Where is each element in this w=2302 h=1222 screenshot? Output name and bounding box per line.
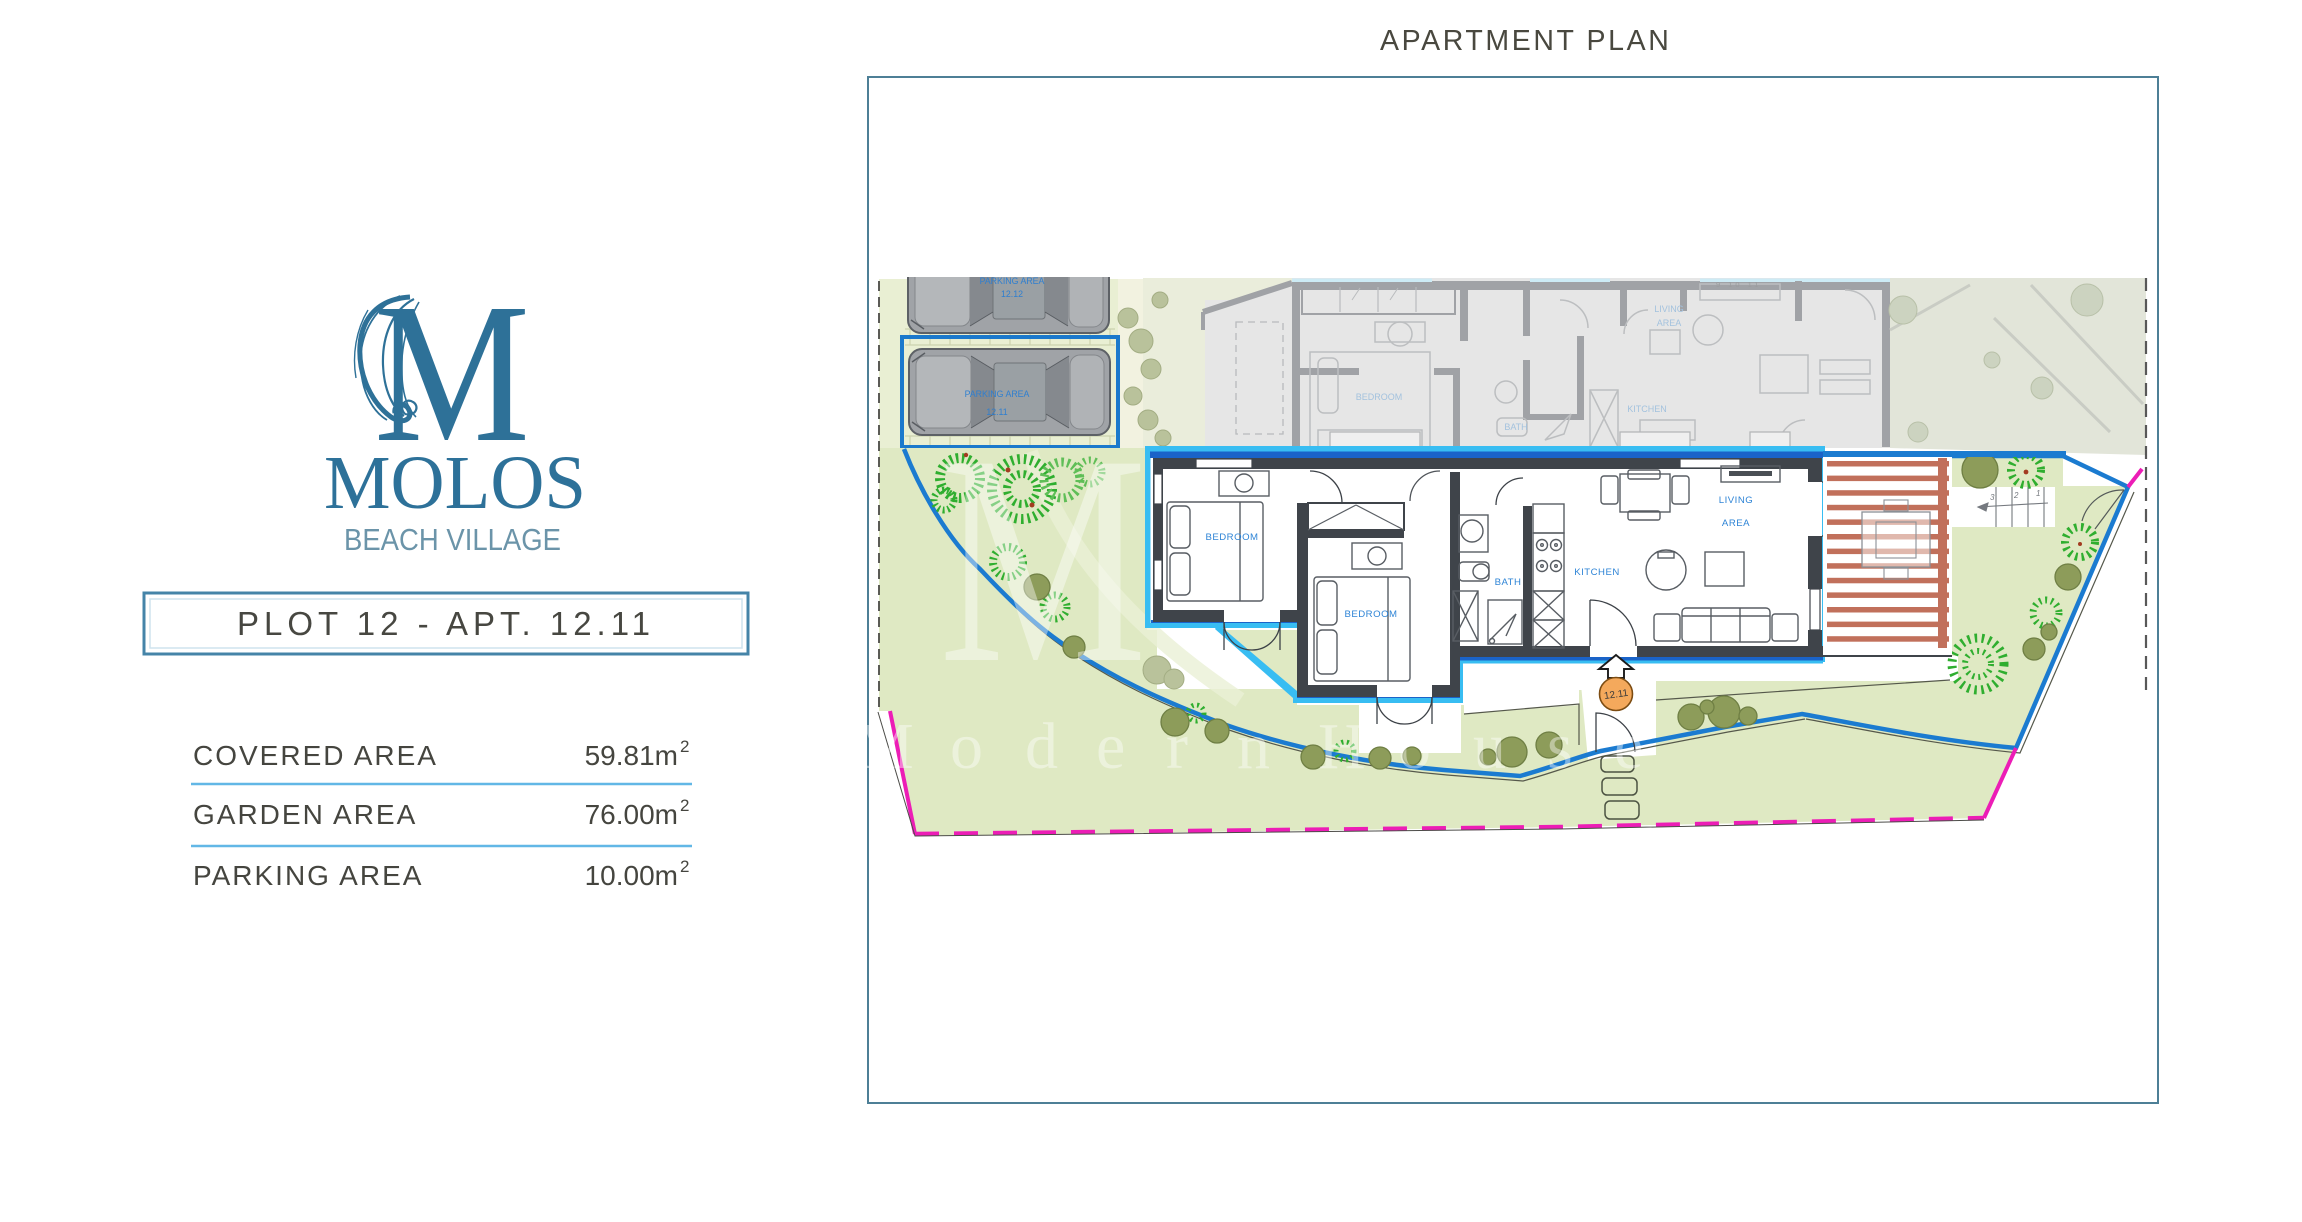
svg-text:APARTMENT PLAN: APARTMENT PLAN (1380, 25, 1671, 57)
svg-text:MOLOS: MOLOS (324, 441, 586, 525)
svg-text:LIVING: LIVING (1719, 495, 1753, 506)
svg-text:PARKING AREA: PARKING AREA (193, 860, 423, 891)
svg-text:KITCHEN: KITCHEN (1627, 404, 1667, 414)
svg-text:BEDROOM: BEDROOM (1205, 532, 1258, 543)
svg-text:o: o (1398, 710, 1431, 783)
svg-text:o: o (950, 710, 983, 783)
svg-text:BEDROOM: BEDROOM (1356, 392, 1403, 402)
svg-text:BATH: BATH (1495, 577, 1522, 588)
svg-text:n: n (1237, 710, 1270, 783)
svg-text:KITCHEN: KITCHEN (1574, 567, 1620, 578)
svg-text:e: e (1096, 710, 1125, 783)
svg-text:LIVING: LIVING (1654, 304, 1684, 314)
svg-text:COVERED AREA: COVERED AREA (193, 740, 438, 771)
svg-text:H: H (1318, 710, 1366, 783)
svg-text:9 10 11: 9 10 11 (1716, 280, 1761, 289)
svg-text:12.12: 12.12 (1001, 289, 1023, 299)
svg-text:AREA: AREA (1722, 518, 1750, 529)
svg-text:76.00m: 76.00m (585, 799, 678, 830)
svg-text:1: 1 (2036, 489, 2040, 498)
svg-text:GARDEN AREA: GARDEN AREA (193, 799, 417, 830)
svg-text:2: 2 (680, 796, 689, 815)
svg-text:BEDROOM: BEDROOM (1344, 609, 1397, 620)
svg-text:2: 2 (2013, 491, 2019, 500)
svg-text:PARKING AREA: PARKING AREA (980, 276, 1045, 286)
svg-text:3: 3 (1990, 493, 1995, 502)
svg-text:2: 2 (680, 737, 689, 756)
svg-text:u: u (1473, 710, 1506, 783)
svg-text:M: M (855, 710, 914, 783)
svg-text:s: s (1547, 710, 1573, 783)
svg-text:2: 2 (680, 857, 689, 876)
svg-text:AREA: AREA (1657, 318, 1682, 328)
svg-text:PLOT 12 - APT. 12.11: PLOT 12 - APT. 12.11 (237, 605, 655, 642)
svg-text:BEACH VILLAGE: BEACH VILLAGE (344, 522, 561, 557)
svg-text:d: d (1025, 710, 1058, 783)
svg-text:M: M (939, 393, 1147, 725)
svg-text:10.00m: 10.00m (585, 860, 678, 891)
svg-text:r: r (1166, 710, 1188, 783)
svg-text:59.81m: 59.81m (585, 740, 678, 771)
svg-text:BATH: BATH (1504, 422, 1527, 432)
svg-text:e: e (1614, 710, 1643, 783)
